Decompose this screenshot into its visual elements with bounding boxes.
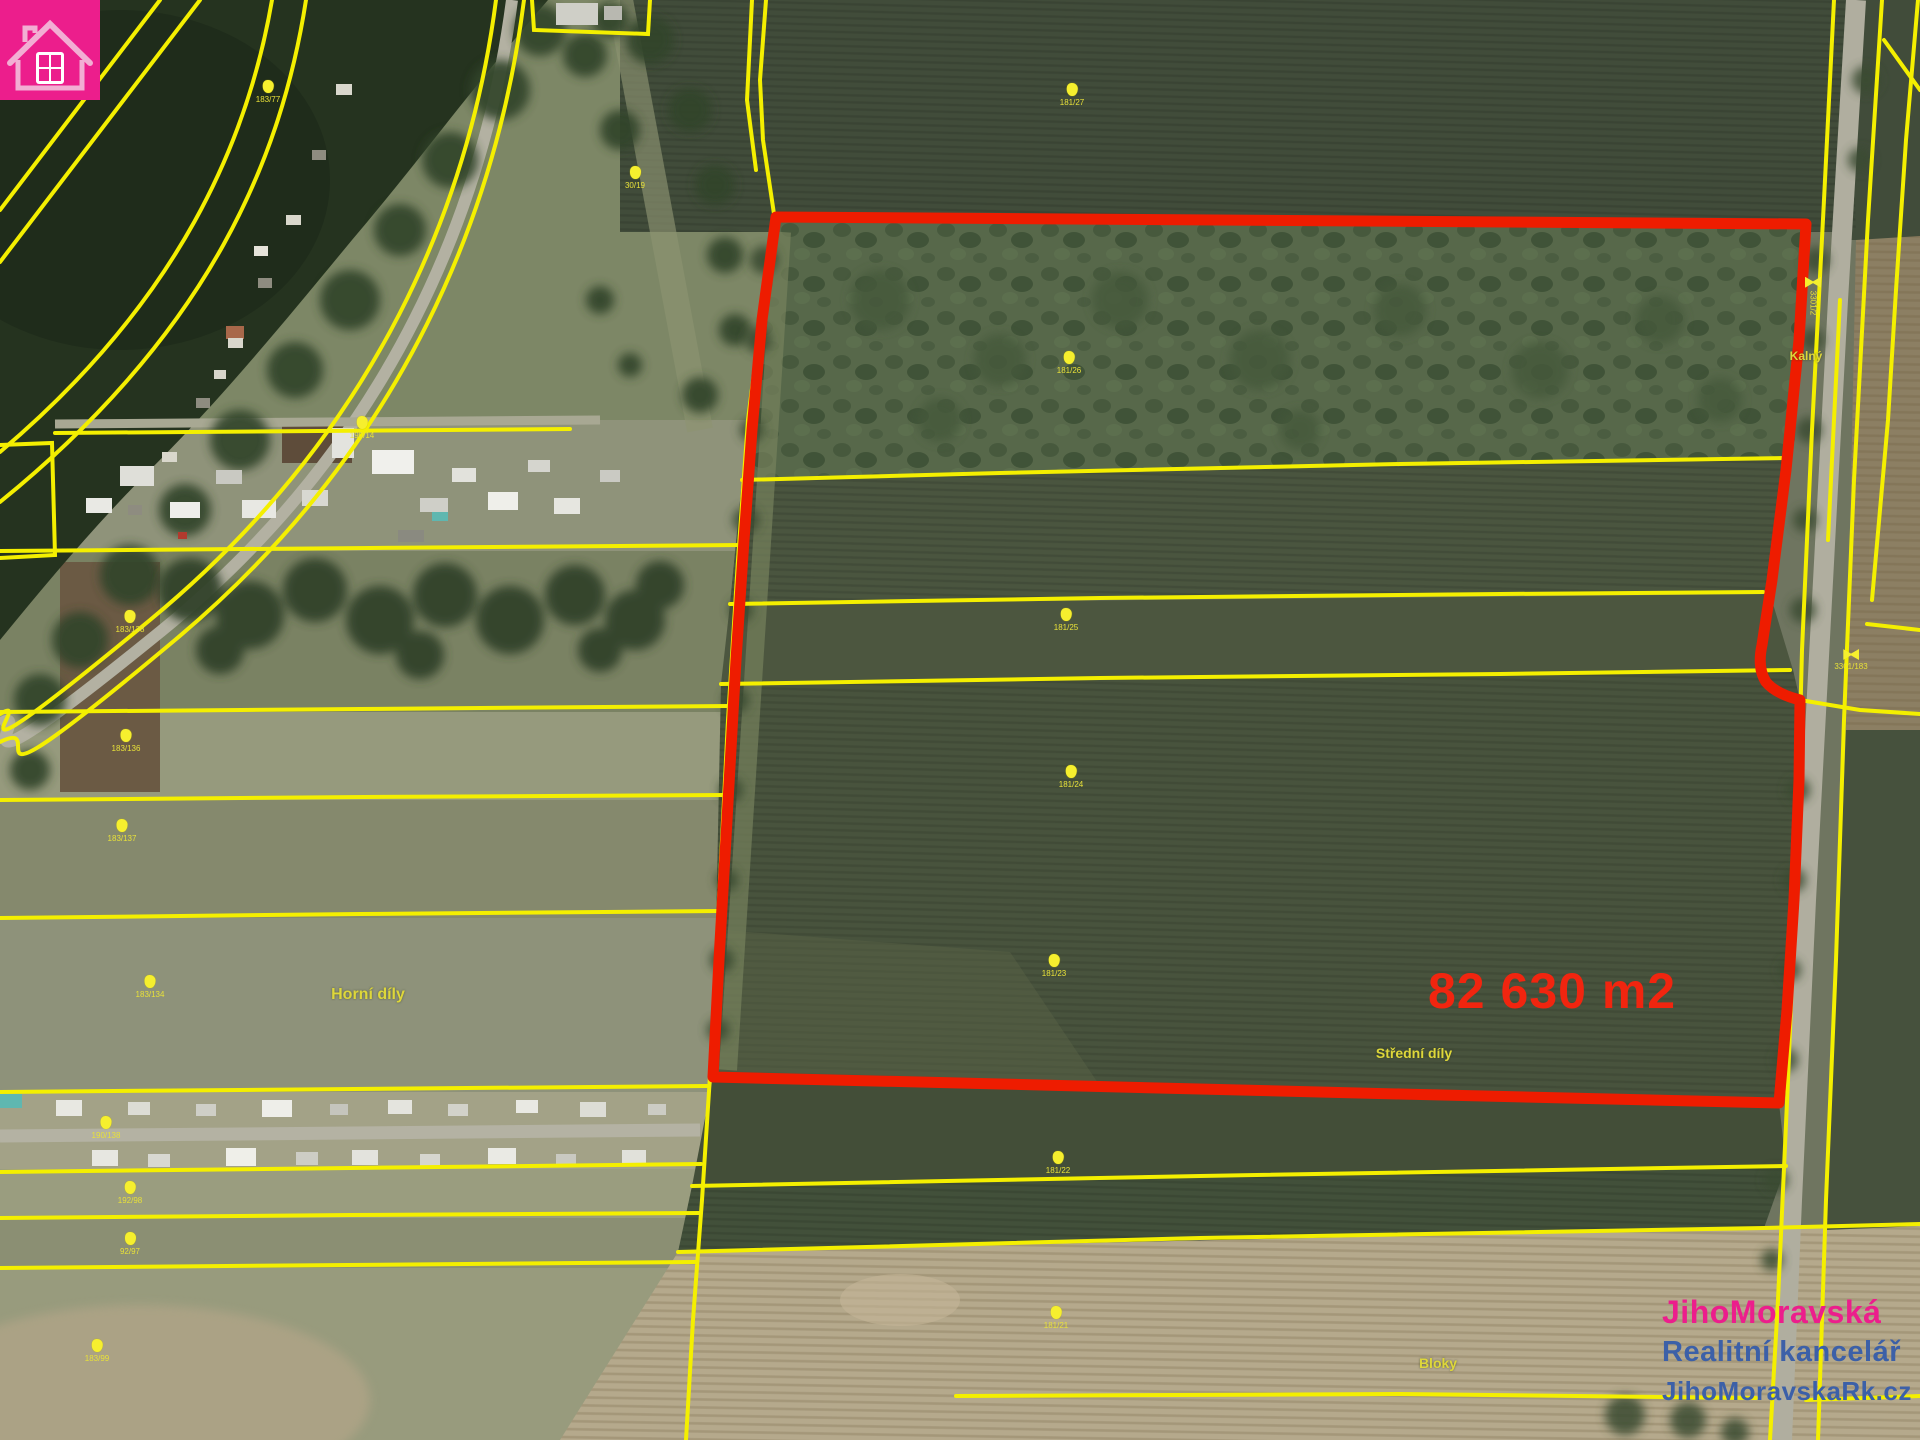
cadastral-map: 82 630 m2 Horní dílyStřední dílyBlokyKal… — [0, 0, 1920, 1440]
map-graphics — [0, 0, 1920, 1440]
village-road — [0, 1130, 700, 1136]
